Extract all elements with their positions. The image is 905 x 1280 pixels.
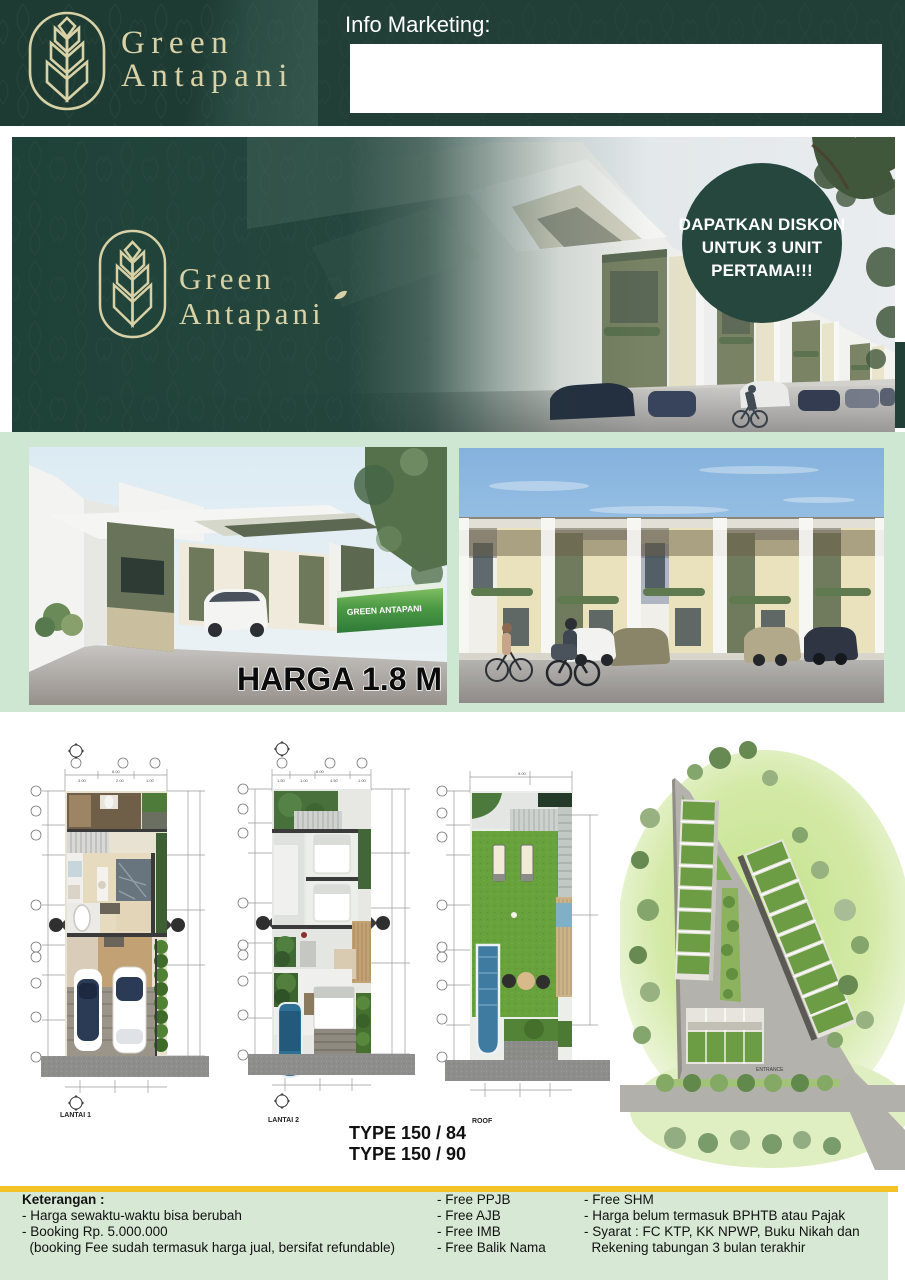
svg-text:Antapani: Antapani — [179, 296, 325, 331]
svg-text:1.00: 1.00 — [146, 778, 155, 783]
svg-text:4.50: 4.50 — [330, 778, 339, 783]
svg-text:LANTAI 1: LANTAI 1 — [60, 1112, 91, 1119]
svg-text:2.00: 2.00 — [116, 778, 125, 783]
svg-text:HARGA 1.8 M: HARGA 1.8 M — [237, 661, 442, 697]
svg-text:1.50: 1.50 — [277, 778, 286, 783]
svg-text:DAPATKAN DISKON: DAPATKAN DISKON — [679, 215, 846, 234]
svg-text:1.00: 1.00 — [358, 778, 367, 783]
svg-text:8.00: 8.00 — [112, 769, 121, 774]
svg-text:Green: Green — [179, 261, 275, 296]
svg-text:LANTAI 2: LANTAI 2 — [268, 1117, 299, 1124]
svg-text:ENTRANCE: ENTRANCE — [756, 1067, 784, 1073]
svg-text:PERTAMA!!!: PERTAMA!!! — [711, 261, 813, 280]
svg-text:8.00: 8.00 — [316, 769, 325, 774]
svg-text:ROOF: ROOF — [472, 1118, 493, 1125]
svg-text:3.00: 3.00 — [78, 778, 87, 783]
svg-text:5.00: 5.00 — [518, 771, 527, 776]
svg-text:1.00: 1.00 — [300, 778, 309, 783]
svg-text:UNTUK 3 UNIT: UNTUK 3 UNIT — [702, 238, 823, 257]
